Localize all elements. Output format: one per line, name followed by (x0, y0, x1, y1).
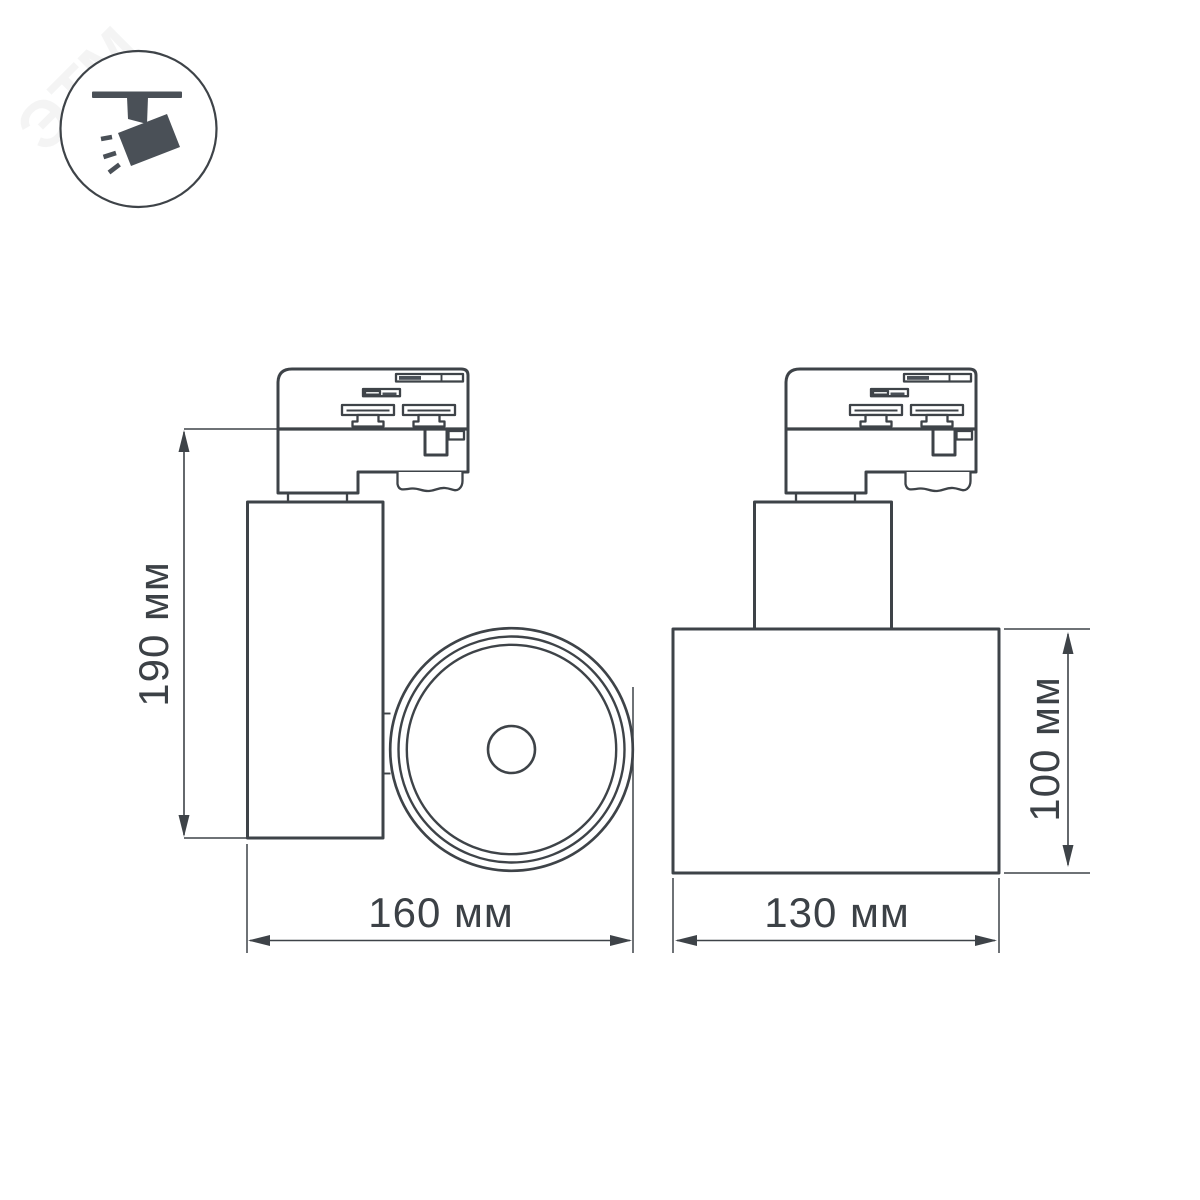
icon-light-ray-1 (101, 137, 112, 139)
led-center (488, 726, 535, 773)
arrowhead-down (1063, 845, 1074, 867)
dimension-label-side-height: 190 мм (130, 561, 177, 707)
dimension-front-width: 130 мм (673, 878, 999, 953)
dimension-label-front-width: 130 мм (764, 889, 910, 936)
arrowhead-down (179, 815, 190, 837)
dimension-label-front-height: 100 мм (1021, 676, 1068, 822)
fixture-type-badge (61, 51, 217, 207)
arrowhead-left (675, 935, 697, 946)
arrowhead-up (1063, 632, 1074, 654)
lens-face (390, 628, 633, 871)
lens-outer-ring (390, 628, 633, 871)
lens-middle-ring (399, 637, 625, 863)
dimension-front-height: 100 мм (1004, 629, 1090, 873)
dimension-label-side-width: 160 мм (368, 889, 514, 936)
side-view (248, 369, 633, 871)
arrowhead-right (975, 935, 997, 946)
front-view (673, 369, 999, 873)
lamp-body-side (248, 502, 384, 838)
lens-inner-ring (407, 645, 616, 854)
arrowhead-up (179, 430, 190, 452)
track-adapter-front (786, 369, 977, 503)
lamp-arm-front (755, 502, 892, 632)
arrowhead-right (610, 935, 632, 946)
track-adapter-side (278, 369, 469, 503)
arrowhead-left (248, 935, 270, 946)
lamp-body-front (673, 629, 999, 873)
technical-drawing-page: ЭТМ (0, 0, 1200, 1200)
track-light-dimension-drawing: ЭТМ (0, 0, 1200, 1200)
